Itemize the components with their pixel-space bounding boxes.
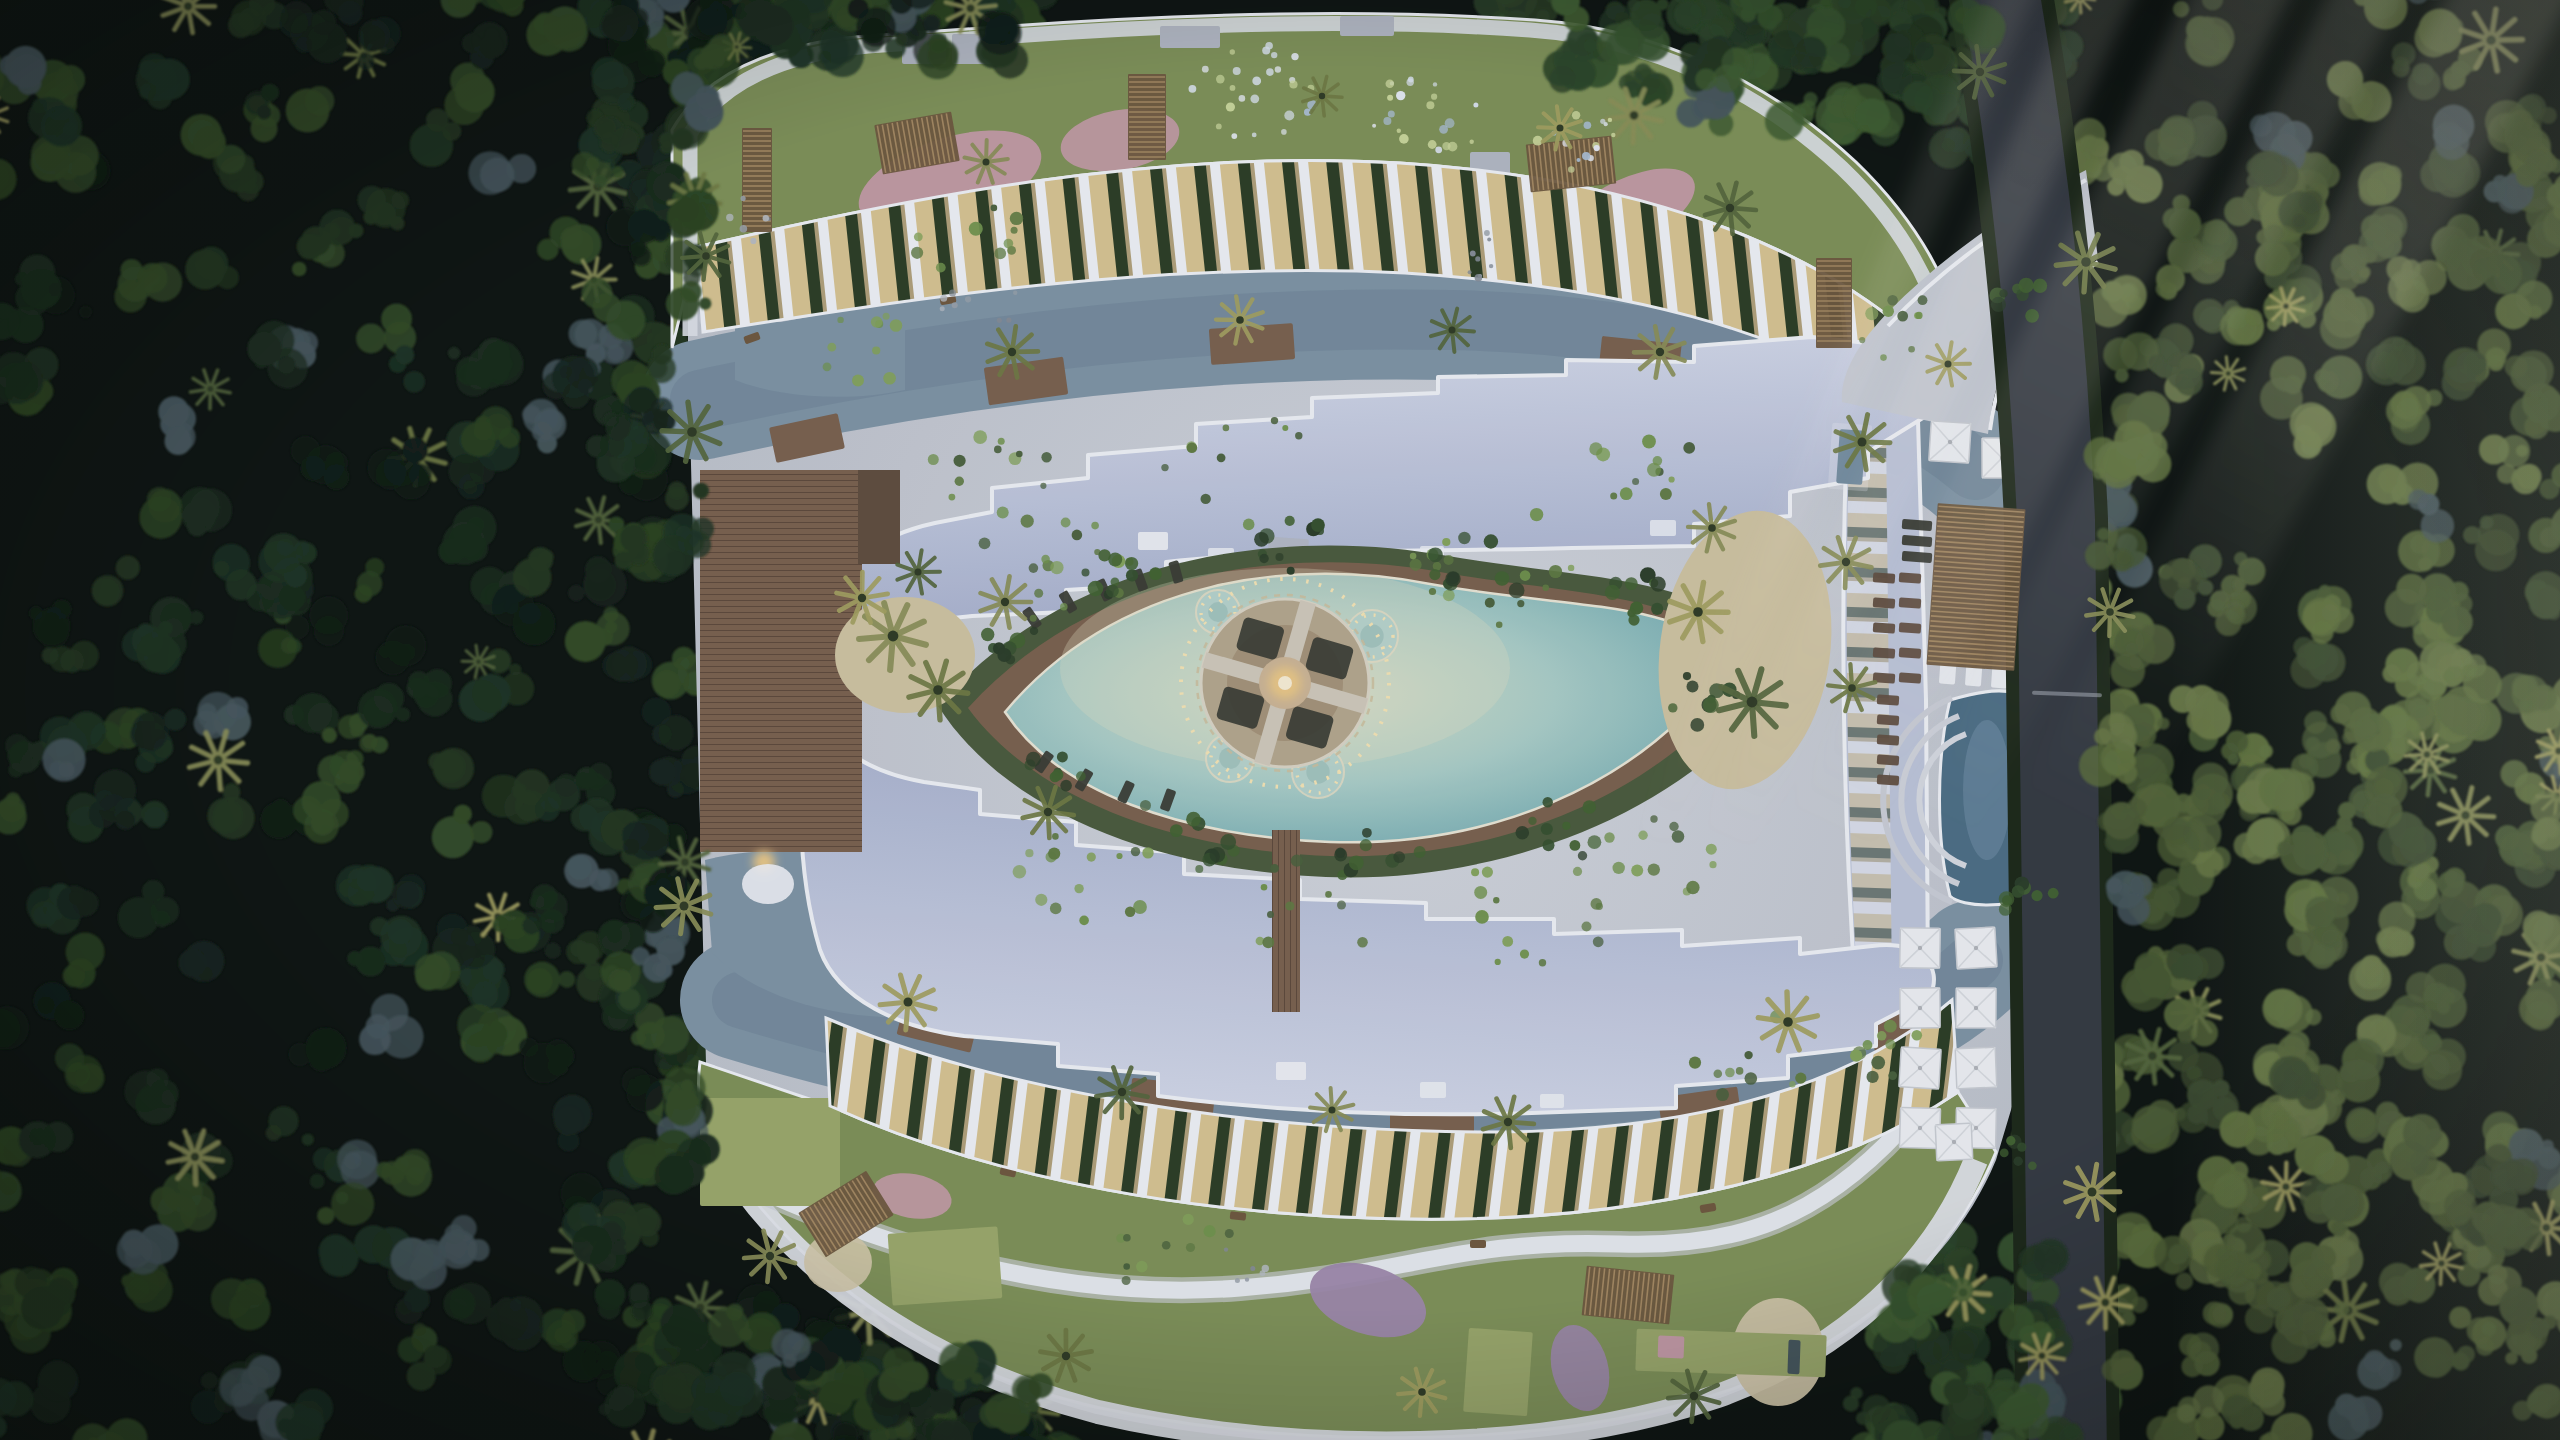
atmosphere-fx [0,0,2560,1440]
scene-canvas [0,0,2560,1440]
vignette [0,0,2560,1440]
aerial-resort-render [0,0,2560,1440]
